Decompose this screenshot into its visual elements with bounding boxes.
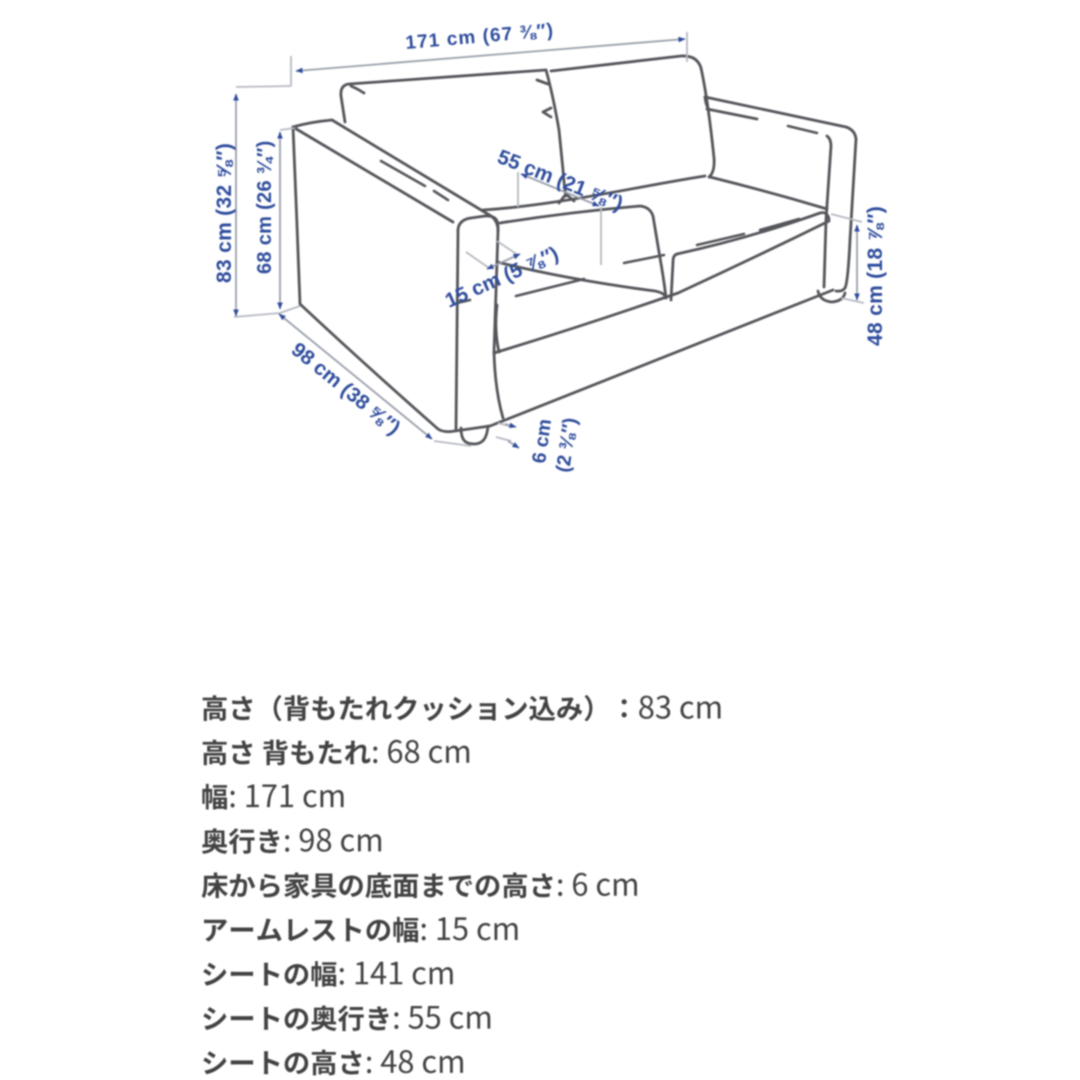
svg-text:48 cm (18 ⅞″): 48 cm (18 ⅞″): [864, 206, 887, 346]
svg-text:68 cm (26 ¾″): 68 cm (26 ¾″): [254, 140, 276, 274]
svg-text:83 cm (32 ⅝″): 83 cm (32 ⅝″): [213, 143, 236, 283]
